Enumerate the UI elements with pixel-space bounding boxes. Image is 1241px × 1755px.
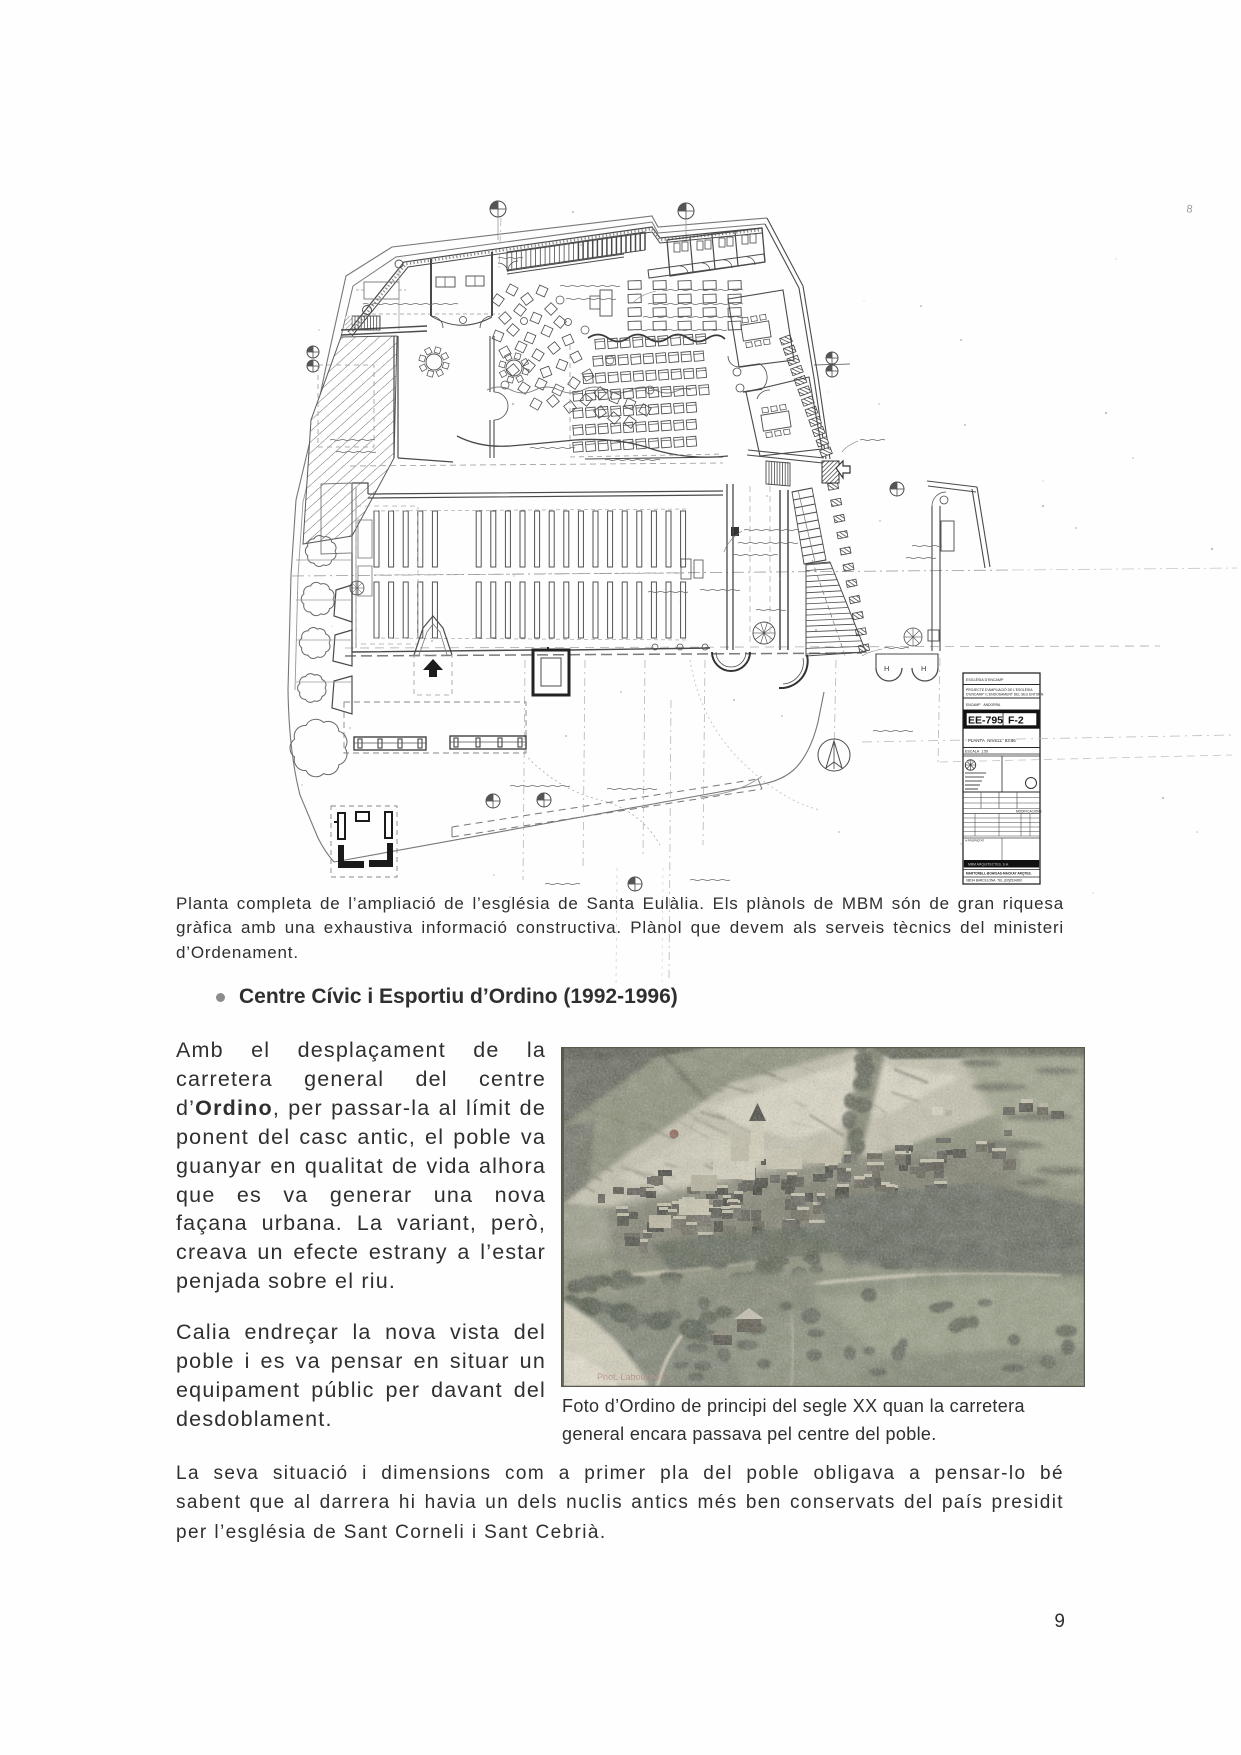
svg-text:ESGLÉSIA D’ENCAMP: ESGLÉSIA D’ENCAMP	[966, 677, 1004, 682]
svg-text:A PROPIETAT: A PROPIETAT	[965, 839, 984, 843]
svg-text:08034 BARCELONA. TEL.(93)25343: 08034 BARCELONA. TEL.(93)2534300	[966, 879, 1022, 883]
svg-text:MBM ARQUITECTES, S.A.: MBM ARQUITECTES, S.A.	[968, 863, 1009, 867]
svg-text:MARTORELL·BOHIGAS·MACKAY ARQTE: MARTORELL·BOHIGAS·MACKAY ARQTES.	[966, 872, 1032, 876]
svg-text:8: 8	[1186, 203, 1194, 216]
svg-text:D’ENCAMP I L’ENDOSAMENT DEL SE: D’ENCAMP I L’ENDOSAMENT DEL SEU ENTORN	[966, 693, 1044, 697]
svg-text:H: H	[921, 664, 926, 673]
svg-text:ENCAMP ANDORRA: ENCAMP ANDORRA	[966, 703, 1001, 707]
svg-text:EE-795: EE-795	[968, 715, 1003, 727]
svg-text:F-2: F-2	[1008, 715, 1024, 727]
svg-text:MODIFICACIONS: MODIFICACIONS	[1016, 810, 1042, 814]
svg-text:ESCALA 1:50: ESCALA 1:50	[965, 750, 988, 754]
svg-text:PROJECTE D’AMPLIACIÓ DE L’ESGL: PROJECTE D’AMPLIACIÓ DE L’ESGLÉSIA	[966, 687, 1033, 692]
svg-text:H: H	[884, 664, 889, 673]
svg-text:PLANTA NIVELL 93.86: PLANTA NIVELL 93.86	[968, 738, 1016, 743]
